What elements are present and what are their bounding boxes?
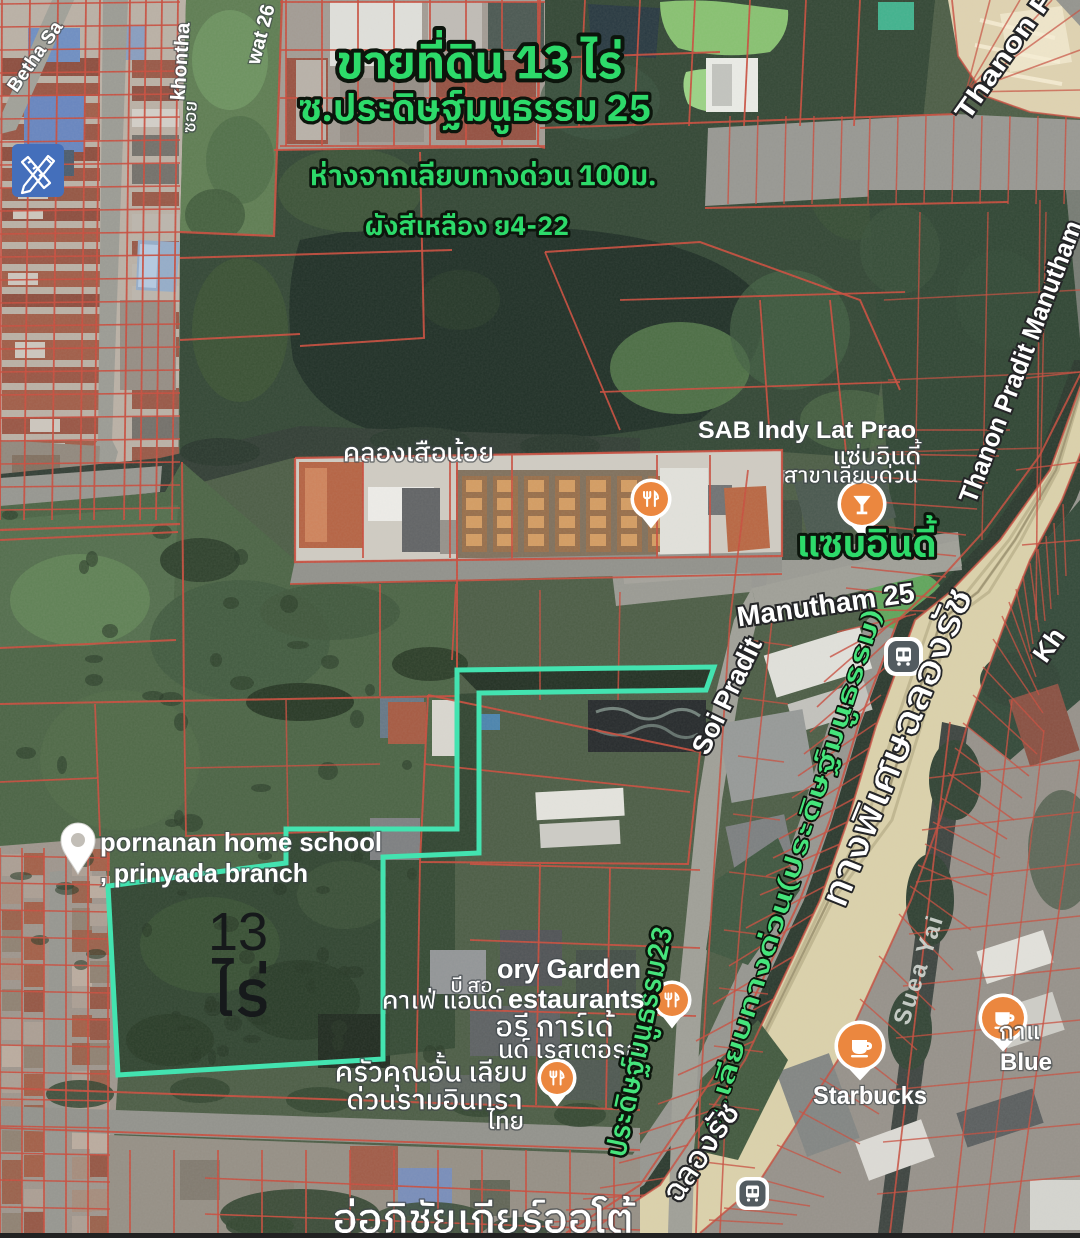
svg-text:SAB Indy Lat Prao: SAB Indy Lat Prao xyxy=(698,417,916,444)
svg-text:13: 13 xyxy=(208,902,268,962)
svg-text:Blue: Blue xyxy=(1000,1049,1052,1076)
svg-text:estaurants: estaurants xyxy=(508,984,645,1014)
svg-text:ory Garden: ory Garden xyxy=(497,954,641,984)
svg-text:, prinyada branch: , prinyada branch xyxy=(100,858,308,888)
svg-text:pornanan home school: pornanan home school xyxy=(100,827,382,857)
svg-text:Starbucks: Starbucks xyxy=(813,1082,927,1110)
